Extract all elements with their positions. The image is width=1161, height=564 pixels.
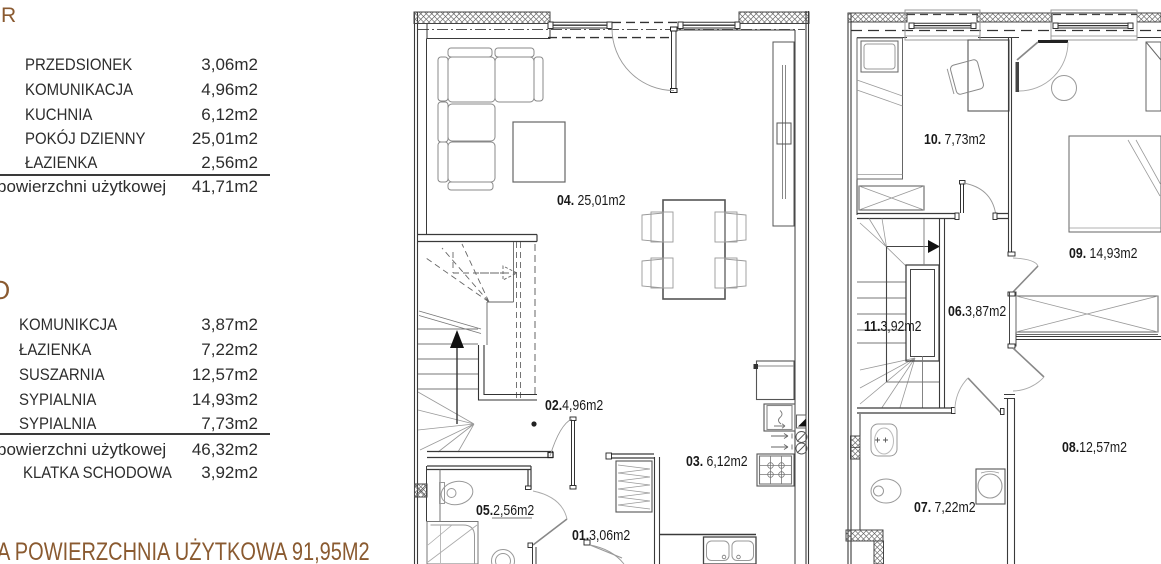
svg-text:04. 25,01m2: 04. 25,01m2 bbox=[557, 192, 625, 208]
svg-text:08.12,57m2: 08.12,57m2 bbox=[1062, 439, 1127, 455]
svg-text:06.3,87m2: 06.3,87m2 bbox=[948, 303, 1006, 319]
svg-text:10. 7,73m2: 10. 7,73m2 bbox=[924, 131, 986, 147]
svg-text:03. 6,12m2: 03. 6,12m2 bbox=[686, 453, 748, 469]
svg-text:07. 7,22m2: 07. 7,22m2 bbox=[914, 499, 976, 515]
svg-text:02.4,96m2: 02.4,96m2 bbox=[545, 397, 603, 413]
svg-text:11.3,92m2: 11.3,92m2 bbox=[864, 318, 922, 334]
svg-text:01.3,06m2: 01.3,06m2 bbox=[572, 527, 630, 543]
svg-text:05.2,56m2: 05.2,56m2 bbox=[476, 502, 534, 518]
svg-text:09. 14,93m2: 09. 14,93m2 bbox=[1069, 245, 1137, 261]
